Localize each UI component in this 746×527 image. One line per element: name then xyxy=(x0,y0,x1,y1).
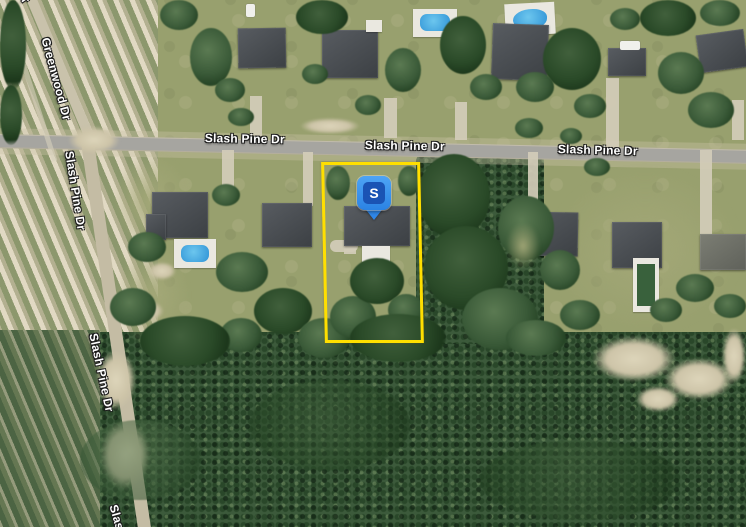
tree xyxy=(650,298,682,322)
driveway xyxy=(455,102,467,140)
zone-bottomleft-scrub xyxy=(0,330,100,527)
tree xyxy=(128,232,166,262)
tree xyxy=(215,78,245,102)
tree xyxy=(560,300,600,330)
tree xyxy=(540,250,580,290)
vehicle xyxy=(246,4,255,17)
house xyxy=(608,48,646,76)
road-label-slash-pine-3: Slash Pine Dr xyxy=(558,142,638,158)
road-label-slash-pine-1: Slash Pine Dr xyxy=(205,131,285,146)
house xyxy=(262,203,312,247)
tree xyxy=(470,74,502,100)
tree xyxy=(688,92,734,128)
tree xyxy=(640,0,696,36)
tree xyxy=(418,154,490,238)
tree xyxy=(574,94,606,118)
marker-badge: S xyxy=(363,182,385,204)
tree xyxy=(228,108,254,126)
house xyxy=(700,234,746,270)
outbuilding xyxy=(366,20,382,32)
tree xyxy=(610,8,640,30)
tree xyxy=(506,320,566,356)
property-marker[interactable]: S xyxy=(356,176,392,226)
tree xyxy=(160,0,198,30)
driveway xyxy=(732,100,744,140)
tree xyxy=(212,184,240,206)
vehicle xyxy=(620,41,640,50)
tree xyxy=(0,85,22,145)
house xyxy=(238,28,287,69)
swimming-pool xyxy=(181,245,209,262)
tree xyxy=(385,48,421,92)
tree xyxy=(676,274,714,302)
tree xyxy=(302,64,328,84)
tree-cluster xyxy=(480,440,680,520)
sand-patch xyxy=(148,262,176,280)
tree-cluster xyxy=(250,380,410,470)
house xyxy=(322,30,378,78)
tree xyxy=(355,95,381,115)
driveway xyxy=(384,98,397,138)
tree xyxy=(0,0,26,90)
tree xyxy=(440,16,486,74)
sand-clearing xyxy=(722,328,746,384)
tree xyxy=(216,252,268,292)
satellite-map[interactable]: Slash Pine Dr Slash Pine Dr Slash Pine D… xyxy=(0,0,746,527)
sand-clearing xyxy=(636,386,680,412)
tree-cluster xyxy=(140,316,230,366)
tree xyxy=(296,0,348,34)
tree xyxy=(584,158,610,176)
screened-pool xyxy=(637,264,655,306)
tree xyxy=(714,294,746,318)
tree-cluster xyxy=(80,420,200,500)
tree xyxy=(515,118,543,138)
tree xyxy=(700,0,740,26)
driveway xyxy=(700,150,712,238)
driveway xyxy=(606,78,619,148)
tree xyxy=(516,72,554,102)
road-label-slash-pine-2: Slash Pine Dr xyxy=(365,138,445,153)
tree xyxy=(658,52,704,94)
tree xyxy=(110,288,156,326)
driveway xyxy=(303,152,313,206)
marker-letter: S xyxy=(369,186,378,200)
sand-patch xyxy=(300,118,360,134)
clearing-in-trees xyxy=(506,222,540,270)
